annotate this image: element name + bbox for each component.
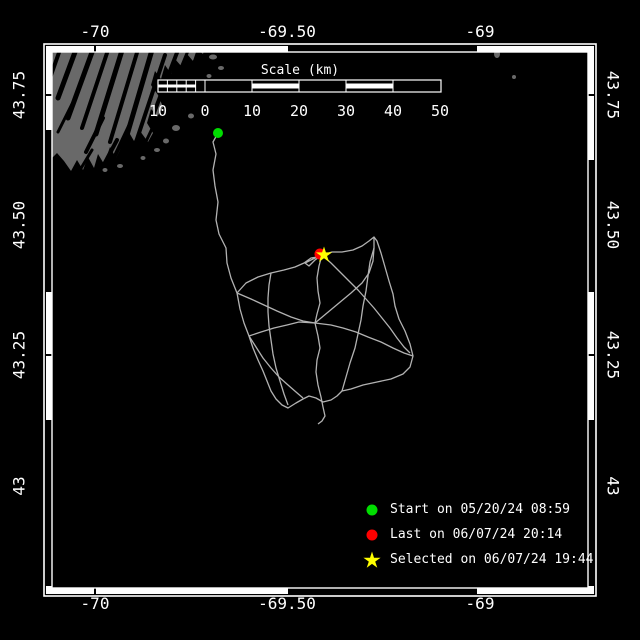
scale-tick-0: 10 xyxy=(149,102,167,120)
axis-label-left-lat1: 43.75 xyxy=(10,71,29,119)
legend-row-last: Last on 06/07/24 20:14 xyxy=(362,522,594,547)
axis-label-top-lon1: -70 xyxy=(81,22,110,41)
axis-label-right-lat1: 43.75 xyxy=(604,71,623,119)
axis-label-top-lon2: -69.50 xyxy=(258,22,316,41)
axis-label-right-lat2: 43.50 xyxy=(604,201,623,249)
axis-label-left-lat4: 43 xyxy=(10,476,29,495)
start-marker-icon xyxy=(362,500,382,520)
last-marker-icon xyxy=(362,525,382,545)
axis-label-right-lat3: 43.25 xyxy=(604,331,623,379)
axis-label-bottom-lon3: -69 xyxy=(466,594,495,613)
scale-tick-1: 0 xyxy=(200,102,209,120)
scale-bar xyxy=(158,80,441,92)
scale-bar-title: Scale (km) xyxy=(261,63,339,78)
selected-marker-icon xyxy=(362,550,382,570)
scale-tick-2: 10 xyxy=(243,102,261,120)
scale-tick-6: 50 xyxy=(431,102,449,120)
axis-label-left-lat3: 43.25 xyxy=(10,331,29,379)
legend-selected-label: Selected on 06/07/24 19:44 xyxy=(390,552,594,567)
legend: Start on 05/20/24 08:59 Last on 06/07/24… xyxy=(362,497,594,572)
axis-label-left-lat2: 43.50 xyxy=(10,201,29,249)
legend-start-label: Start on 05/20/24 08:59 xyxy=(390,502,570,517)
scale-tick-5: 40 xyxy=(384,102,402,120)
map-marker-start[interactable] xyxy=(213,128,223,138)
scale-tick-4: 30 xyxy=(337,102,355,120)
legend-last-label: Last on 06/07/24 20:14 xyxy=(390,527,562,542)
legend-row-selected: Selected on 06/07/24 19:44 xyxy=(362,547,594,572)
legend-row-start: Start on 05/20/24 08:59 xyxy=(362,497,594,522)
axis-label-top-lon3: -69 xyxy=(466,22,495,41)
axis-label-bottom-lon2: -69.50 xyxy=(258,594,316,613)
axis-label-bottom-lon1: -70 xyxy=(81,594,110,613)
gps-track-layer[interactable] xyxy=(213,128,413,424)
axis-label-right-lat4: 43 xyxy=(604,476,623,495)
scale-tick-3: 20 xyxy=(290,102,308,120)
map-screen: -70 -69.50 -69 -70 -69.50 -69 43.75 43.5… xyxy=(0,0,640,640)
